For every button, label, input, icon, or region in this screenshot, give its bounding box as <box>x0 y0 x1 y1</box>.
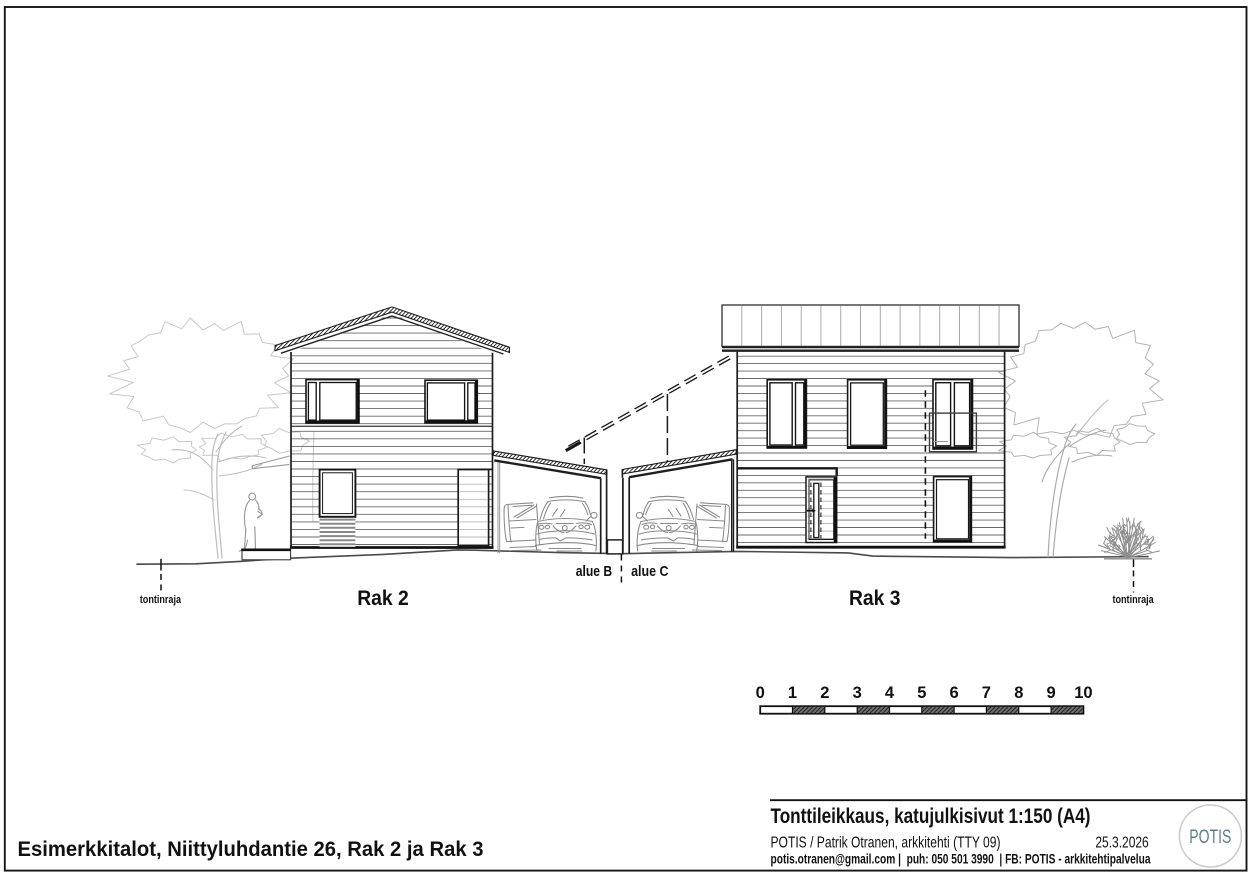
svg-text:7: 7 <box>982 684 991 702</box>
svg-text:alue C: alue C <box>631 564 669 580</box>
svg-text:alue B: alue B <box>576 564 613 580</box>
svg-text:tontinraja: tontinraja <box>140 594 182 606</box>
svg-text:Esimerkkitalot, Niittyluhdanti: Esimerkkitalot, Niittyluhdantie 26, Rak … <box>18 837 484 861</box>
svg-text:4: 4 <box>885 684 895 702</box>
svg-text:8: 8 <box>1014 684 1023 702</box>
svg-text:5: 5 <box>917 684 926 702</box>
svg-text:9: 9 <box>1047 684 1056 702</box>
svg-text:tontinraja: tontinraja <box>1113 594 1155 606</box>
svg-text:POTIS / Patrik Otranen, arkkit: POTIS / Patrik Otranen, arkkitehti (TTY … <box>771 834 1001 851</box>
svg-text:1: 1 <box>788 684 797 702</box>
svg-text:POTIS: POTIS <box>1189 826 1231 848</box>
svg-text:25.3.2026: 25.3.2026 <box>1095 834 1148 851</box>
svg-text:potis.otranen@gmail.com | puh: potis.otranen@gmail.com | puh: 050 501 3… <box>771 851 1151 866</box>
svg-text:Rak 3: Rak 3 <box>849 586 901 610</box>
svg-text:6: 6 <box>950 684 959 702</box>
svg-text:3: 3 <box>853 684 862 702</box>
svg-text:Rak 2: Rak 2 <box>357 586 409 610</box>
svg-text:2: 2 <box>820 684 829 702</box>
svg-text:10: 10 <box>1074 684 1092 702</box>
svg-text:0: 0 <box>756 684 765 702</box>
svg-text:Tonttileikkaus, katujulkisivut: Tonttileikkaus, katujulkisivut 1:150 (A4… <box>771 804 1091 828</box>
